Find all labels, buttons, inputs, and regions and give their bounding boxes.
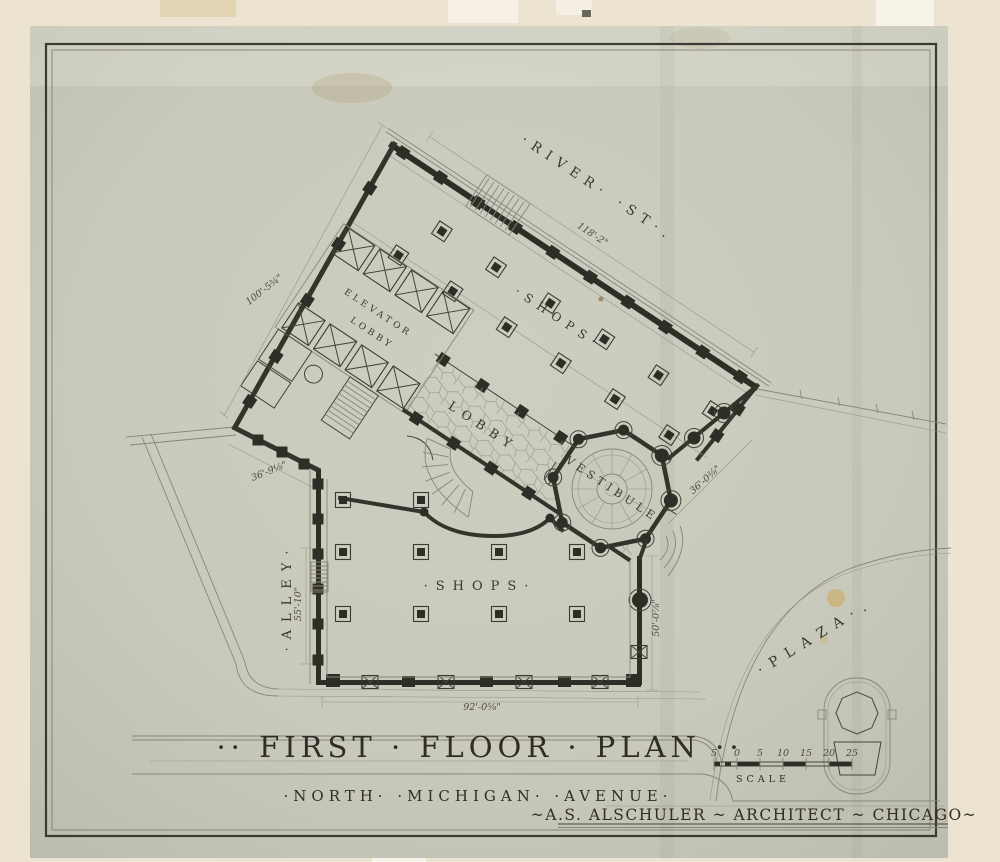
scale-tick-4: 15 — [800, 748, 812, 759]
architectural-drawing: 118'-2" ·RIVER· ·ST·. ·SHOPS· ELEVATOR L… — [0, 0, 1000, 862]
dim-avenue-frontage: 92'-0⅝" — [463, 702, 501, 713]
dim-plaza-side: 50'-0⅞" — [651, 599, 662, 637]
scale-tick-3: 10 — [777, 748, 789, 759]
scale-label: SCALE — [736, 774, 790, 785]
architect-credit: ~A.S. ALSCHULER ~ ARCHITECT ~ CHICAGO~ — [531, 806, 977, 824]
alley-wall — [316, 470, 321, 684]
scale-tick-6: 25 — [845, 748, 858, 759]
alley-label: ·ALLEY· — [280, 543, 295, 652]
stain — [827, 589, 845, 607]
scale-tick-2: 5 — [757, 748, 763, 759]
plaza-wall — [637, 556, 642, 685]
scale-tick-0: 5 — [711, 748, 717, 759]
stain — [312, 73, 392, 103]
scale-tick-1: 0 — [734, 748, 740, 759]
avenue-label: ·NORTH· ·MICHIGAN· ·AVENUE· — [284, 787, 673, 805]
pin-mark — [582, 10, 591, 17]
sheet-title: ·· FIRST · FLOOR · PLAN ·· — [216, 730, 743, 764]
avenue-wall — [316, 680, 642, 685]
scale-tick-5: 20 — [822, 748, 835, 759]
shops-lower-label: ·SHOPS· — [424, 579, 537, 594]
